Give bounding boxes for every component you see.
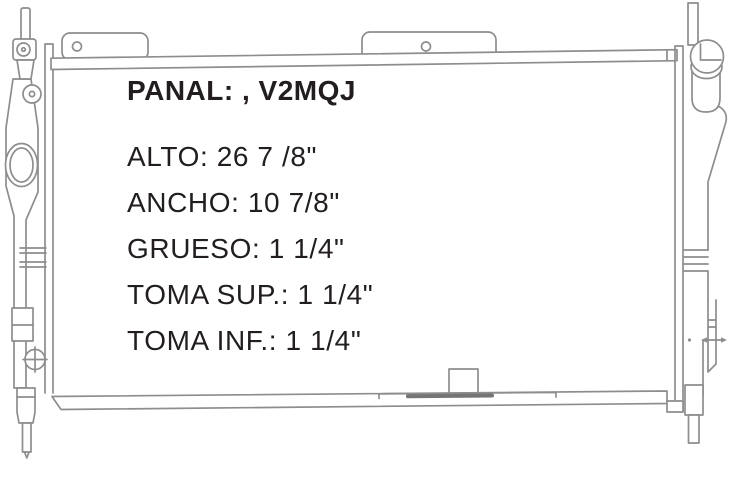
spec-lines: ALTO: 26 7 /8" ANCHO: 10 7/8" GRUESO: 1 … bbox=[127, 134, 373, 364]
spec-line-grueso: GRUESO: 1 1/4" bbox=[127, 226, 373, 272]
bracket-ring-hole bbox=[23, 85, 41, 103]
top-tab-left bbox=[62, 33, 148, 60]
spec-line-toma-inf: TOMA INF.: 1 1/4" bbox=[127, 318, 373, 364]
radiator-spec-image: PANAL: , V2MQJ ALTO: 26 7 /8" ANCHO: 10 … bbox=[0, 0, 732, 484]
right-channel-foot bbox=[667, 401, 683, 412]
right-channel bbox=[675, 46, 683, 412]
spec-line-ancho: ANCHO: 10 7/8" bbox=[127, 180, 373, 226]
bracket-top-pin bbox=[21, 8, 30, 41]
right-bracket-strip bbox=[708, 300, 716, 372]
bracket-lower-block bbox=[17, 388, 35, 423]
spec-line-alto: ALTO: 26 7 /8" bbox=[127, 134, 373, 180]
bracket-bottom-pin bbox=[23, 423, 32, 458]
filler-neck bbox=[691, 40, 724, 112]
filler-neck-pin bbox=[688, 3, 698, 45]
clamp-lower-lug bbox=[17, 60, 34, 79]
drain-plug bbox=[685, 385, 703, 443]
bottom-bar-band bbox=[408, 396, 492, 397]
bracket-mount-block bbox=[12, 308, 33, 341]
spec-line-toma-sup: TOMA SUP.: 1 1/4" bbox=[127, 272, 373, 318]
spec-title: PANAL: , V2MQJ bbox=[127, 76, 373, 106]
bottom-bar bbox=[52, 391, 667, 410]
left-channel bbox=[45, 44, 53, 393]
right-bracket bbox=[684, 106, 727, 396]
bracket-oval-slot bbox=[6, 144, 38, 187]
clamp-hole bbox=[17, 43, 30, 56]
filler-cap bbox=[691, 40, 724, 73]
right-bracket-edge bbox=[708, 106, 726, 250]
spec-block: PANAL: , V2MQJ ALTO: 26 7 /8" ANCHO: 10 … bbox=[127, 76, 373, 364]
right-cross-bands bbox=[684, 250, 708, 271]
left-mounting-bracket bbox=[6, 8, 48, 458]
